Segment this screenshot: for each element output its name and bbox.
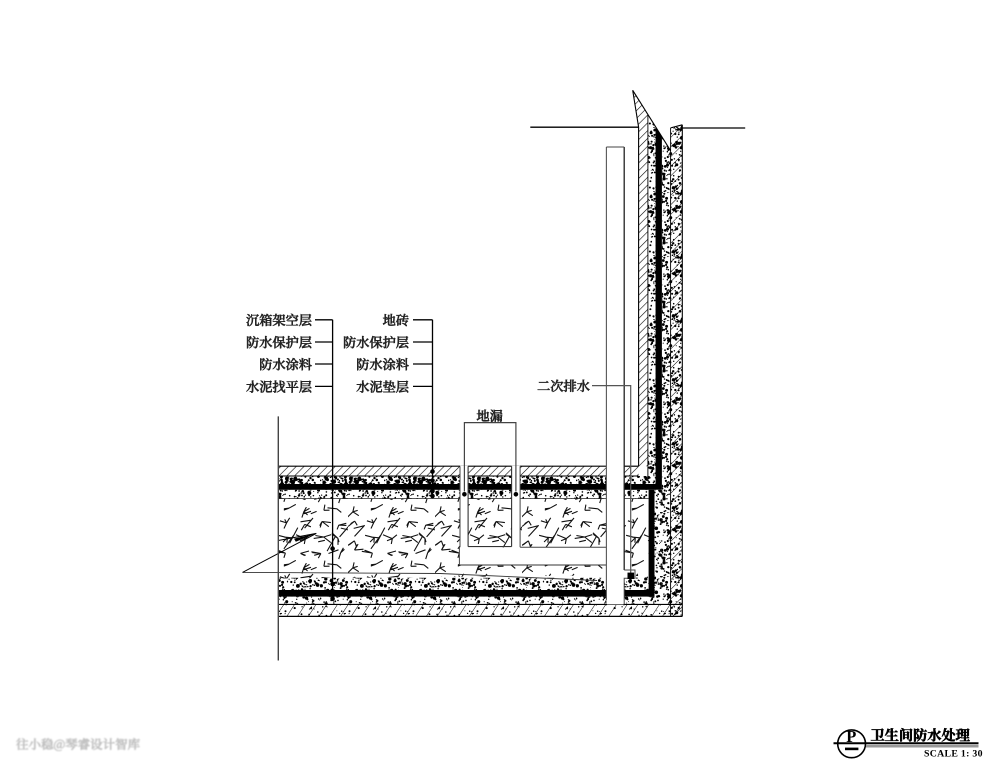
- svg-text:SCALE 1: 30: SCALE 1: 30: [924, 749, 983, 760]
